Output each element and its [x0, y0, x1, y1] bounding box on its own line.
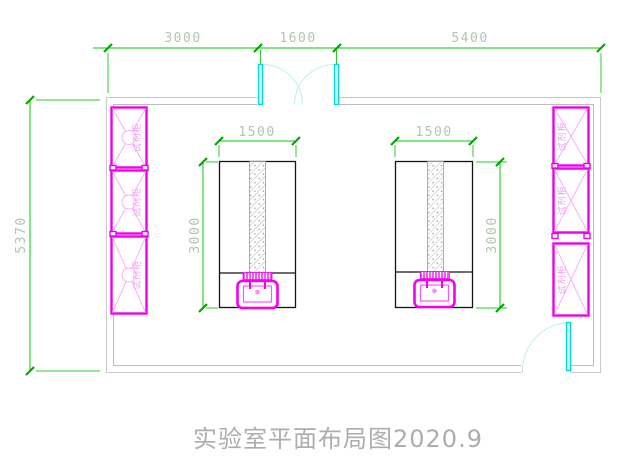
cad-floorplan-viewport: 试剂柜 试剂柜 试剂柜 试剂柜 试剂柜	[0, 0, 619, 469]
dim-value-top-middle: 1600	[279, 31, 316, 46]
reagent-cabinets-left: 试剂柜 试剂柜 试剂柜	[110, 108, 148, 314]
cabinet-label: 试剂柜	[131, 187, 143, 217]
dim-value-bench-left-depth: 3000	[188, 216, 203, 253]
cabinet-label: 试剂柜	[556, 264, 568, 294]
dim-value-bench-right-width: 1500	[415, 125, 452, 140]
lab-bench-right	[396, 162, 473, 308]
door-leaf	[335, 65, 339, 105]
lab-bench-left	[220, 162, 296, 309]
dim-value-bench-left-width: 1500	[238, 125, 275, 140]
sink-drain	[432, 289, 437, 294]
cabinet-connector	[552, 234, 558, 239]
dim-value-top-left: 3000	[164, 31, 201, 46]
top-door-opening	[257, 92, 339, 109]
cabinet-label: 试剂柜	[556, 121, 568, 151]
room-walls	[107, 92, 601, 376]
cabinet-label: 试剂柜	[131, 260, 143, 290]
dim-value-bench-right-depth: 3000	[485, 216, 500, 253]
reagent-cabinets-right: 试剂柜 试剂柜 试剂柜	[552, 108, 590, 316]
dim-value-left-height: 5370	[14, 216, 29, 253]
sink-drain-grate	[243, 273, 272, 280]
bottom-door-opening	[521, 359, 571, 376]
wall-outer-line	[107, 98, 601, 373]
floorplan-drawing: 试剂柜 试剂柜 试剂柜 试剂柜 试剂柜	[0, 0, 619, 469]
dim-value-top-right: 5400	[451, 31, 488, 46]
door-leaf	[567, 323, 571, 371]
dimension-annotations: 3000 1600 5400 5370 1500 3000 1500	[14, 31, 605, 375]
cabinet-connector	[584, 234, 590, 239]
cabinet-label: 试剂柜	[556, 185, 568, 215]
bench-reagent-shelf	[250, 162, 266, 274]
sink-drain	[255, 290, 260, 295]
cabinet-label: 试剂柜	[131, 122, 143, 152]
wall-inner-line	[114, 105, 594, 366]
door-leaf	[259, 65, 263, 105]
bench-reagent-shelf	[428, 162, 444, 273]
sink-drain-grate	[421, 272, 450, 279]
drawing-title: 实验室平面布局图2020.9	[193, 425, 483, 453]
